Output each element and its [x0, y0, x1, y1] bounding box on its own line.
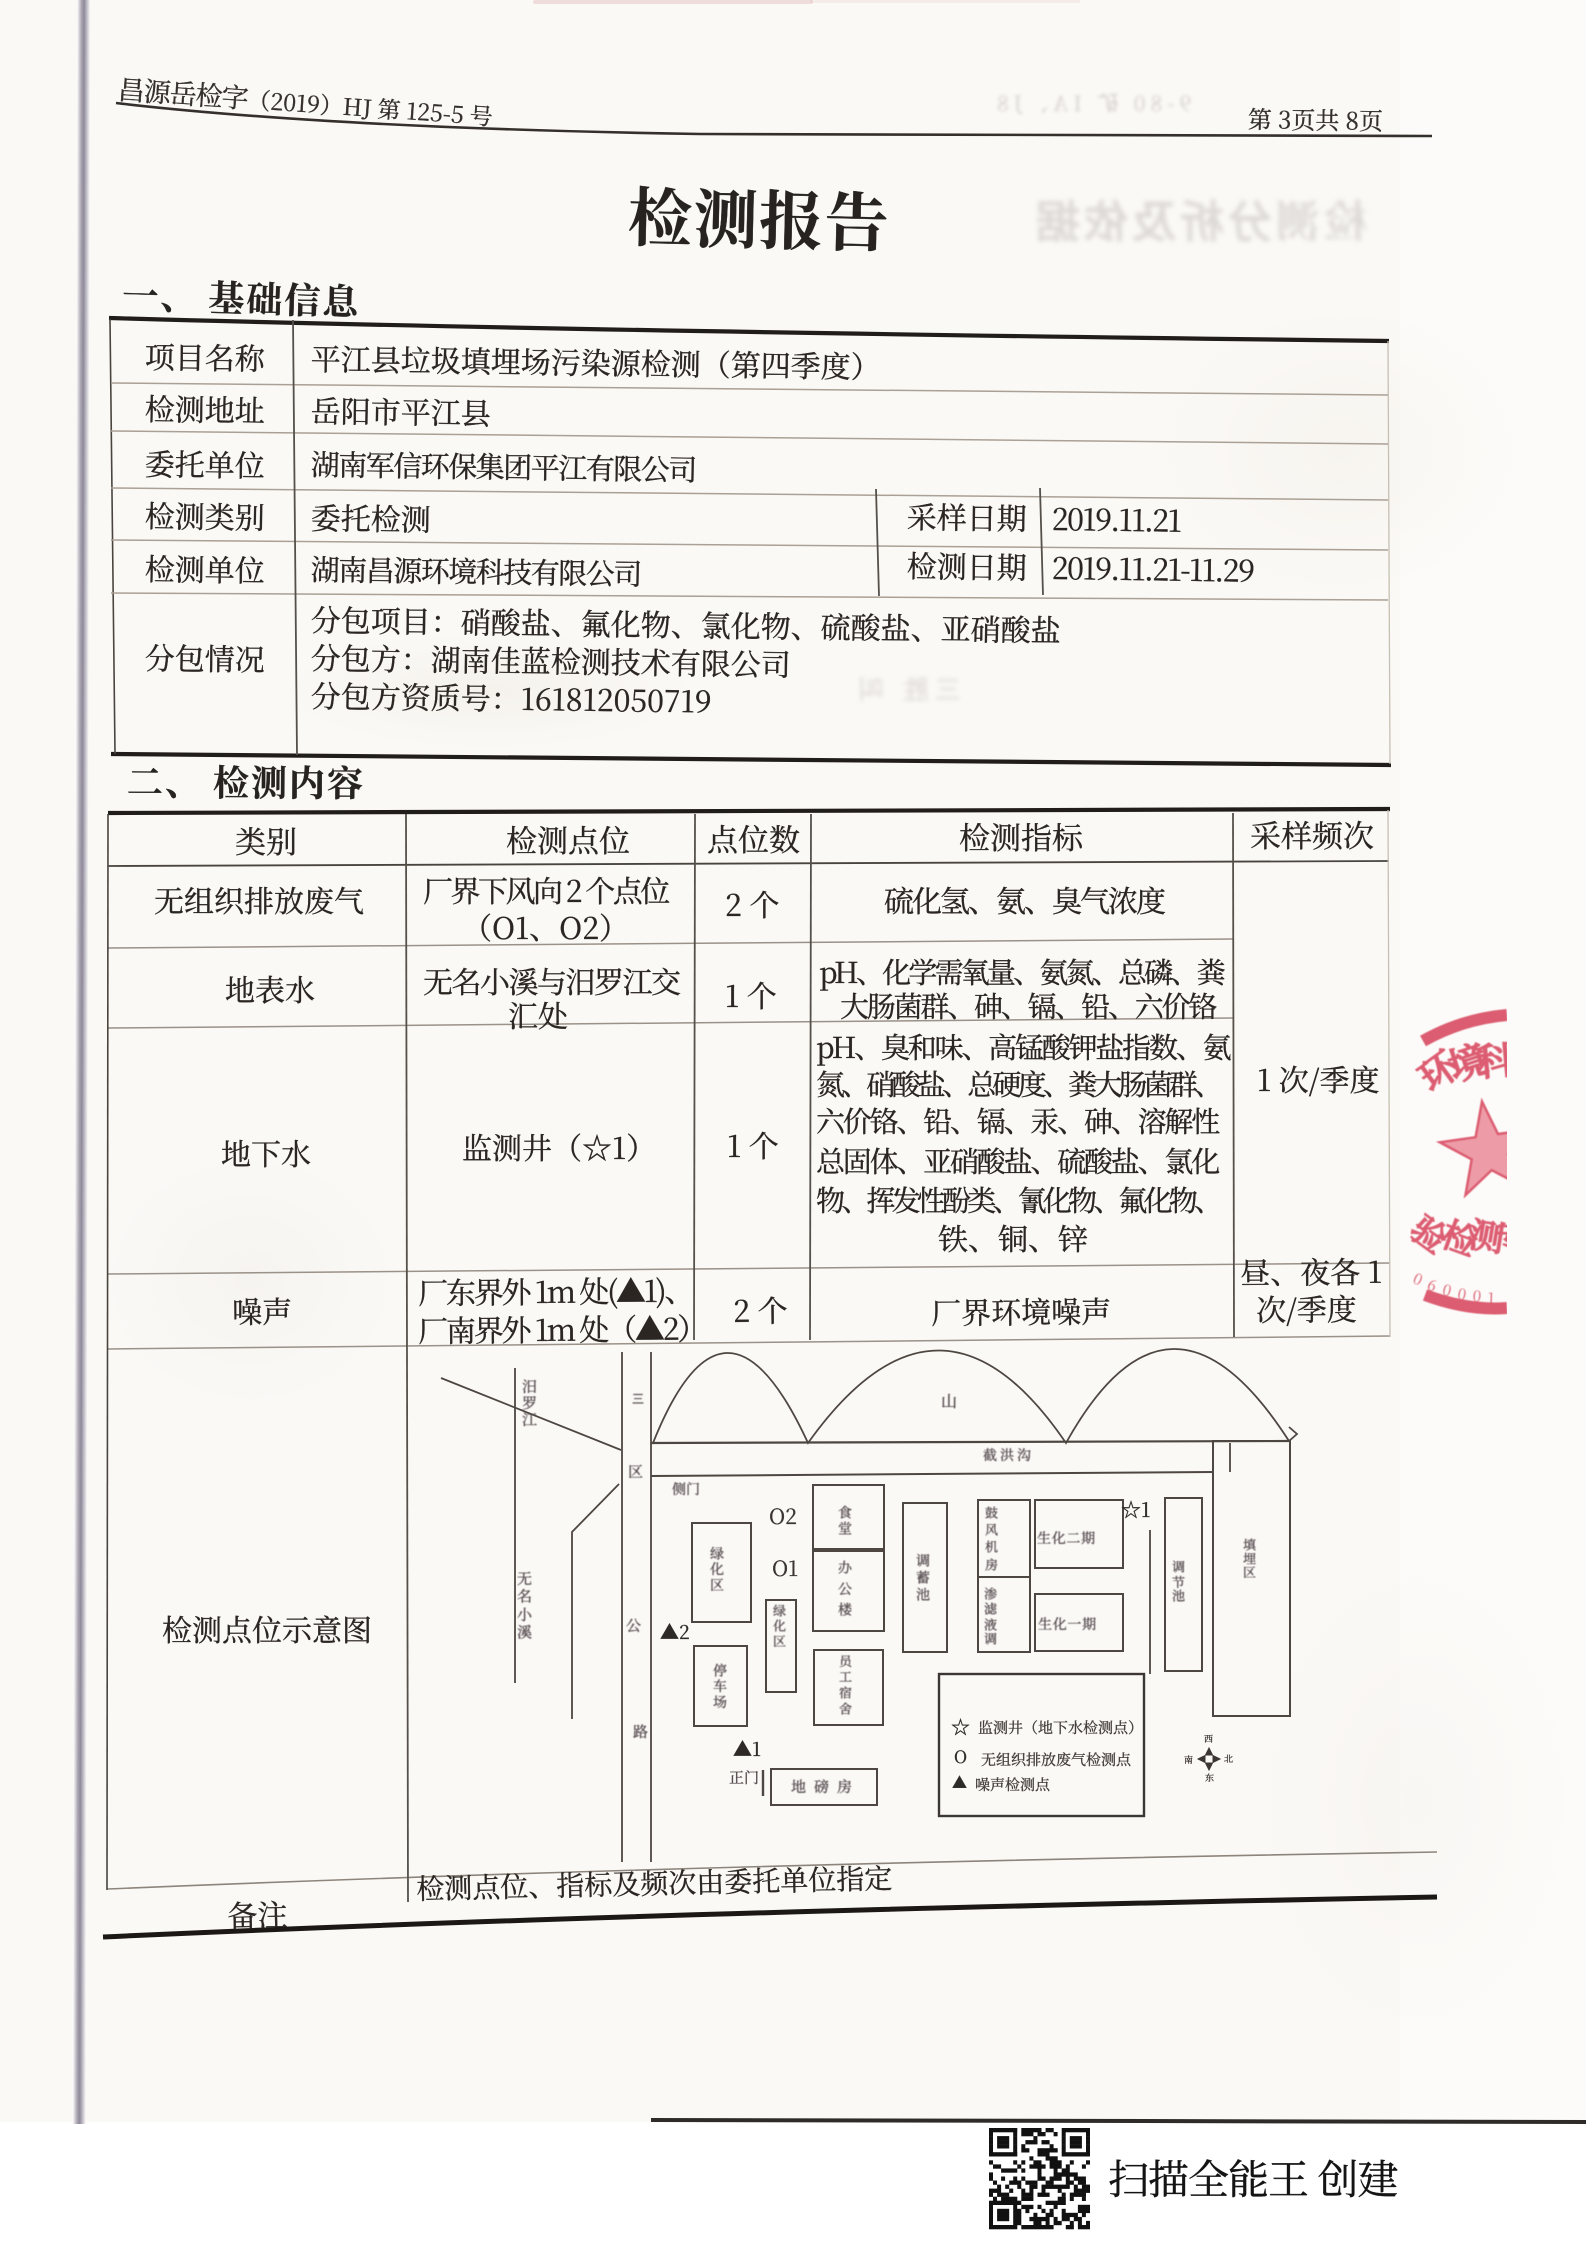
svg-text:专: 专 — [1495, 1210, 1532, 1261]
svg-text:科: 科 — [1474, 1029, 1517, 1087]
svg-text:1: 1 — [1487, 1287, 1495, 1308]
svg-text:0: 0 — [1410, 1268, 1426, 1291]
